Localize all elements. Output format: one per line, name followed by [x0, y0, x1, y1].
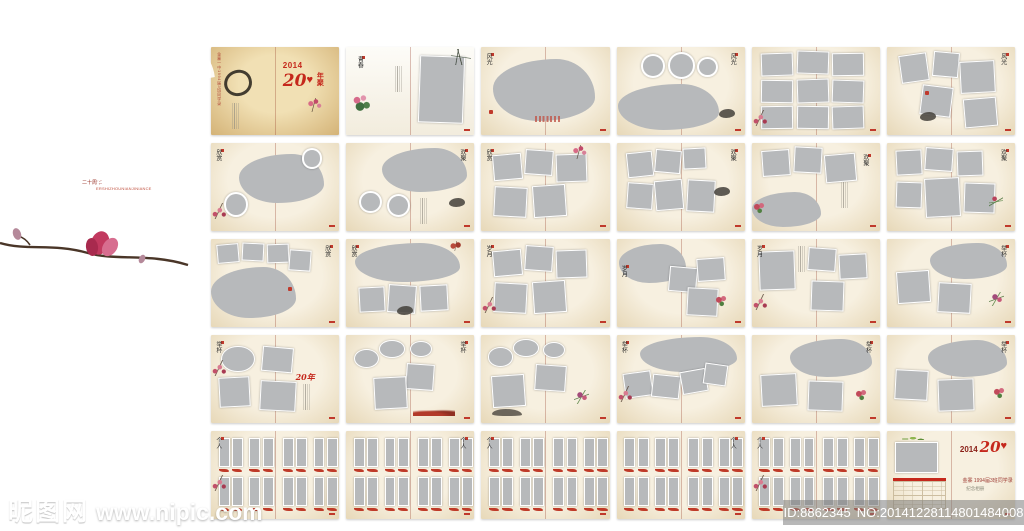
photo-placeholder [895, 442, 939, 473]
photo-placeholder [808, 380, 844, 411]
album-spread-16: 岁月 [617, 239, 745, 327]
portrait-placeholder [655, 438, 666, 467]
plum-decoration [211, 360, 227, 376]
album-spread-17: 岁月 [752, 239, 880, 327]
feature-stripe-4: 可直接应用 [0, 426, 193, 459]
page-corner-mark [735, 417, 741, 419]
portrait-placeholder [719, 477, 730, 506]
page-corner-mark [870, 321, 876, 323]
cloud-ornament [759, 469, 769, 472]
album-spread-2: 青春 [346, 47, 474, 135]
portrait-placeholder [567, 438, 578, 467]
photo-placeholder [925, 147, 955, 172]
spread-title: 欢聚 [1000, 149, 1009, 161]
portrait-placeholder [385, 438, 396, 467]
album-spread-7: 欣赏 [211, 143, 339, 231]
tcol-decoration [395, 66, 404, 92]
tcol-decoration [798, 246, 807, 272]
seal-decoration [925, 91, 929, 95]
photo-placeholder [488, 347, 514, 366]
photo-placeholder [793, 147, 823, 175]
page-corner-mark [600, 129, 606, 131]
photo-placeholder [492, 248, 524, 277]
photo-placeholder [267, 244, 289, 264]
cover-year: 2014 [283, 61, 337, 71]
photo-placeholder [492, 152, 524, 181]
portrait-placeholder [385, 477, 396, 506]
spread-title: 举杯 [1000, 341, 1009, 353]
portrait-placeholder [638, 477, 649, 506]
photo-placeholder [932, 51, 960, 78]
portrait-placeholder [249, 438, 260, 467]
album-spread-18: 举杯 [887, 239, 1015, 327]
portrait-placeholder [354, 438, 365, 467]
photo-placeholder [896, 270, 931, 304]
cloud-ornament [283, 469, 293, 472]
portrait-placeholder [462, 477, 473, 506]
cloud-ornament [520, 508, 530, 511]
photo-placeholder [493, 282, 528, 314]
image-no: NO:20141228114801484008 [857, 505, 1024, 520]
album-spread-21 [481, 335, 609, 423]
plum-decoration [211, 203, 227, 219]
photo-placeholder [410, 341, 432, 357]
page-fold [410, 47, 411, 135]
maple-decoration [449, 241, 463, 251]
feature-text-2: 300象素 [47, 350, 146, 384]
spread-title: 个人 [485, 437, 494, 449]
photo-placeholder [832, 105, 865, 129]
spread-title: 举杯 [620, 341, 629, 353]
photo-placeholder [354, 349, 380, 368]
cloud-ornament [719, 469, 729, 472]
spread-title: 岁月 [485, 245, 494, 257]
cloud-ornament [638, 469, 648, 472]
promo-banner: 2 2014 二十周年 纪念册 ERSHIZHOUNIANJINIANCE 金寨… [0, 55, 193, 531]
feature-stripe-2: 300象素 [0, 350, 193, 383]
branch-decoration [571, 145, 587, 159]
tcol-decoration [303, 384, 312, 410]
cloud-ornament [462, 469, 472, 472]
cloud-ornament [837, 469, 847, 472]
photo-placeholder [895, 149, 922, 175]
photo-placeholder [524, 149, 554, 176]
flowers-decoration [992, 386, 1006, 399]
cloud-ornament [385, 508, 395, 511]
site-watermark: 昵图网 www.nipic.com [8, 492, 263, 528]
heart-icon: ♥ [306, 74, 313, 86]
photo-placeholder [807, 247, 837, 272]
cloud-ornament [702, 469, 712, 472]
ink-decoration [719, 109, 735, 118]
page-corner-mark [329, 225, 335, 227]
photo-placeholder [217, 243, 240, 264]
portrait-placeholder [520, 438, 531, 467]
photo-placeholder [654, 179, 685, 211]
cover-logo-row: 20♥年聚 [283, 71, 337, 91]
cloud-ornament [219, 469, 229, 472]
tcol-decoration [841, 182, 850, 208]
photo-placeholder [696, 257, 726, 282]
album-spread-10: 欢聚 [617, 143, 745, 231]
portrait-placeholder [283, 438, 294, 467]
album-spread-26: 个人 [346, 431, 474, 519]
portrait-placeholder [790, 438, 801, 467]
photo-placeholder [406, 363, 436, 391]
rocks-decoration [492, 409, 522, 416]
photo-placeholder [626, 151, 654, 178]
cloud-ornament [367, 469, 377, 472]
photo-placeholder [937, 282, 972, 314]
back-number: 20 [980, 438, 1001, 456]
feature-stripes: 分层文件 300象素 CDR文件 可直接应用 [0, 312, 193, 459]
album-spread-24: 举杯 [887, 335, 1015, 423]
portrait-placeholder [597, 438, 608, 467]
album-spread-28: 个人 [617, 431, 745, 519]
album-spread-15: 岁月 [481, 239, 609, 327]
cloud-ornament [567, 469, 577, 472]
cloud-ornament [296, 469, 306, 472]
spread-title: 举杯 [864, 341, 873, 353]
cloud-ornament [638, 508, 648, 511]
page-corner-mark [1005, 129, 1011, 131]
cloud-ornament [449, 508, 459, 511]
photo-placeholder [760, 373, 797, 407]
logo-number-2: 2 [76, 99, 126, 166]
photo-placeholder [697, 57, 718, 77]
site-url: www.nipic.com [96, 499, 263, 526]
cloud-ornament [489, 469, 499, 472]
photo-placeholder [374, 376, 409, 409]
photo-placeholder [302, 148, 323, 168]
ink-decoration [920, 112, 936, 121]
photo-placeholder [532, 184, 567, 218]
spread-title: 风光 [485, 53, 494, 65]
cloud-ornament [398, 469, 408, 472]
cloud-ornament [462, 508, 472, 511]
plum-decoration [752, 475, 768, 491]
portrait-placeholder [688, 438, 699, 467]
tcol-decoration [420, 198, 429, 224]
photo-placeholder [796, 51, 829, 75]
cloud-ornament [385, 469, 395, 472]
cloud-ornament [314, 469, 324, 472]
cloud-ornament [533, 469, 543, 472]
portrait-placeholder [283, 477, 294, 506]
album-spread-13: 欣赏 [211, 239, 339, 327]
page-corner-mark [464, 321, 470, 323]
image-id: ID:8862345 [784, 505, 851, 520]
cloud-ornament [688, 469, 698, 472]
portrait-placeholder [584, 438, 595, 467]
orchid-decoration [574, 390, 589, 404]
page-corner-mark [600, 513, 606, 515]
bamboo-decoration [451, 49, 471, 65]
cloud-ornament [668, 508, 678, 511]
photo-placeholder [420, 284, 450, 312]
photo-placeholder [654, 149, 682, 174]
back-logo: 201420♥ [960, 438, 1007, 457]
photo-placeholder [355, 243, 460, 282]
photo-placeholder [957, 150, 983, 176]
portrait-placeholder [553, 477, 564, 506]
photo-placeholder [686, 179, 716, 212]
page-corner-mark [600, 417, 606, 419]
cloud-ornament [823, 469, 833, 472]
album-spread-11: 欢聚 [752, 143, 880, 231]
plum-decoration [617, 386, 633, 402]
portrait-placeholder [584, 477, 595, 506]
portrait-placeholder [449, 477, 460, 506]
cloud-ornament [354, 469, 364, 472]
cloud-ornament [804, 469, 814, 472]
cover-logo: 201420♥年聚 [283, 61, 337, 91]
album-spread-23: 举杯 [752, 335, 880, 423]
portrait-placeholder [773, 438, 784, 467]
plum-decoration [211, 475, 227, 491]
spread-title: 岁月 [620, 265, 629, 277]
photo-placeholder [641, 54, 665, 78]
photo-placeholder [491, 374, 526, 408]
photo-placeholder [493, 186, 528, 218]
page-corner-mark [464, 417, 470, 419]
page-corner-mark [329, 513, 335, 515]
page-corner-mark [735, 321, 741, 323]
cloud-ornament [732, 508, 742, 511]
photo-placeholder [524, 245, 554, 272]
back-line1: 金寨 1994届3班同学录 [962, 477, 1012, 484]
photo-placeholder [760, 79, 792, 102]
cloud-ornament [533, 508, 543, 511]
photo-placeholder [211, 267, 296, 318]
screenshot-root: 金寨一中1994届3班同学录201420♥年聚青春风光风光风光欣赏欢聚欣赏欢聚欢… [0, 0, 1024, 531]
portrait-placeholder [638, 438, 649, 467]
portrait-placeholder [354, 477, 365, 506]
photo-placeholder [832, 53, 864, 76]
page-corner-mark [735, 129, 741, 131]
spread-title: 个人 [729, 437, 738, 449]
cloud-ornament [502, 469, 512, 472]
spread-title: 风光 [1000, 53, 1009, 65]
page-fold [410, 431, 411, 519]
portrait-placeholder [314, 438, 325, 467]
back-line2: 纪念相册 [966, 486, 984, 492]
portrait-placeholder [533, 477, 544, 506]
cloud-ornament [263, 508, 273, 511]
cloud-ornament [790, 469, 800, 472]
photo-placeholder [959, 60, 995, 93]
cloud-ornament [702, 508, 712, 511]
photo-placeholder [924, 177, 961, 217]
portrait-placeholder [398, 477, 409, 506]
album-spread-4: 风光 [617, 47, 745, 135]
photo-placeholder [288, 249, 311, 272]
spread-title: 风光 [729, 53, 738, 65]
cover-spine-text: 金寨一中1994届3班同学录 [216, 52, 222, 106]
cloud-ornament [502, 508, 512, 511]
portrait-placeholder [296, 477, 307, 506]
spread-title: 个人 [215, 437, 224, 449]
photo-placeholder [359, 191, 382, 214]
page-corner-mark [735, 225, 741, 227]
page-corner-mark [1005, 225, 1011, 227]
portrait-placeholder [489, 477, 500, 506]
cloud-ornament [283, 508, 293, 511]
photo-placeholder [218, 376, 250, 407]
redtext-decoration [535, 116, 561, 122]
portrait-placeholder [263, 477, 274, 506]
spread-title: 举杯 [215, 341, 224, 353]
spread-title: 欢聚 [459, 149, 468, 161]
photo-placeholder [387, 194, 410, 217]
cloud-ornament [520, 469, 530, 472]
photo-placeholder [224, 192, 248, 217]
photo-placeholder [241, 242, 264, 261]
page-corner-mark [870, 417, 876, 419]
feature-text-1: 分层文件 [45, 312, 149, 346]
spread-title: 欣赏 [215, 149, 224, 161]
album-spread-22: 举杯 [617, 335, 745, 423]
seal-decoration [489, 110, 493, 114]
photo-placeholder [626, 183, 653, 211]
photo-placeholder [418, 55, 465, 123]
iris-decoration [989, 292, 1004, 306]
album-spread-12: 欢聚 [887, 143, 1015, 231]
album-spread-grid: 金寨一中1994届3班同学录201420♥年聚青春风光风光风光欣赏欢聚欣赏欢聚欢… [211, 47, 1015, 519]
photo-placeholder [824, 153, 857, 184]
photo-placeholder [702, 363, 728, 387]
portrait-placeholder [804, 438, 815, 467]
spread-title: 欢聚 [862, 154, 871, 166]
photo-placeholder [382, 148, 467, 192]
album-spread-6: 风光 [887, 47, 1015, 135]
back-year: 2014 [960, 445, 978, 454]
cloud-ornament [431, 469, 441, 472]
portrait-placeholder [668, 438, 679, 467]
album-spread-19: 20年举杯 [211, 335, 339, 423]
photo-placeholder [683, 148, 707, 170]
photo-placeholder [895, 181, 922, 208]
page-fold [681, 431, 682, 519]
feature-stripe-1: 分层文件 [0, 312, 193, 345]
photo-placeholder [513, 339, 539, 357]
photo-placeholder [832, 79, 865, 103]
cover-number: 20 [283, 71, 307, 91]
spread-title: 欣赏 [485, 149, 494, 161]
album-spread-3: 风光 [481, 47, 609, 135]
photo-placeholder [894, 369, 929, 401]
page-corner-mark [870, 225, 876, 227]
page-corner-mark [329, 417, 335, 419]
photo-placeholder [379, 340, 405, 358]
cloud-ornament [431, 508, 441, 511]
page-fold [275, 431, 276, 519]
lotus-decoration [351, 93, 371, 111]
page-corner-mark [464, 513, 470, 515]
magnolia-branch-decoration [0, 221, 192, 284]
feature-text-3: CDR文件 [41, 388, 152, 422]
cloud-ornament [624, 508, 634, 511]
cloud-ornament [263, 469, 273, 472]
cloud-ornament [854, 469, 864, 472]
spread-title: 个人 [459, 437, 468, 449]
photo-placeholder [259, 380, 296, 412]
album-spread-27: 个人 [481, 431, 609, 519]
portrait-placeholder [296, 438, 307, 467]
leaves-decoration [900, 435, 926, 443]
spread-title: 岁月 [756, 245, 765, 257]
portrait-placeholder [398, 438, 409, 467]
photo-placeholder [938, 378, 975, 411]
location-label: 金寨 [12, 190, 36, 207]
cloud-ornament [759, 508, 769, 511]
cloud-ornament [597, 469, 607, 472]
cloud-ornament [232, 469, 242, 472]
portrait-placeholder [702, 477, 713, 506]
cloud-ornament [418, 469, 428, 472]
ink-decoration [449, 198, 465, 207]
photo-placeholder [532, 280, 567, 314]
peony-decoration [752, 201, 766, 214]
page-corner-mark [600, 321, 606, 323]
plum-decoration [752, 294, 768, 310]
spread-title: 欣赏 [324, 245, 333, 257]
photo-placeholder [838, 253, 867, 279]
cloud-ornament [773, 469, 783, 472]
photo-placeholder [928, 340, 1007, 377]
cloud-ornament [249, 469, 259, 472]
photo-placeholder [534, 364, 567, 392]
portrait-placeholder [418, 438, 429, 467]
cover-characters: 年聚 [315, 72, 323, 86]
portrait-placeholder [719, 438, 730, 467]
page-corner-mark [1005, 417, 1011, 419]
cloud-ornament [327, 469, 337, 472]
cloud-ornament [868, 469, 878, 472]
photo-placeholder [760, 53, 793, 77]
flowers-decoration [854, 388, 868, 401]
spread-title: 青春 [356, 56, 365, 68]
portrait-placeholder [553, 438, 564, 467]
portrait-placeholder [327, 438, 338, 467]
photo-placeholder [555, 250, 587, 279]
portrait-placeholder [418, 477, 429, 506]
ink-decoration [714, 187, 730, 196]
page-corner-mark [329, 321, 335, 323]
photo-placeholder [796, 106, 828, 129]
portrait-placeholder [823, 438, 834, 467]
portrait-placeholder [655, 477, 666, 506]
plum-decoration [752, 110, 768, 126]
photo-placeholder [651, 374, 681, 400]
portrait-placeholder [624, 477, 635, 506]
branch-decoration [306, 98, 322, 112]
cloud-ornament [398, 508, 408, 511]
cloud-ornament [655, 508, 665, 511]
photo-placeholder [796, 78, 829, 103]
cloud-ornament [327, 508, 337, 511]
photo-placeholder [493, 59, 596, 121]
peony-decoration [714, 294, 728, 307]
portrait-placeholder [567, 477, 578, 506]
cloud-ornament [553, 469, 563, 472]
cloud-ornament [732, 469, 742, 472]
portrait-placeholder [668, 477, 679, 506]
heart-icon [124, 109, 184, 169]
cloud-ornament [354, 508, 364, 511]
cloud-ornament [489, 508, 499, 511]
photo-placeholder [790, 339, 872, 378]
